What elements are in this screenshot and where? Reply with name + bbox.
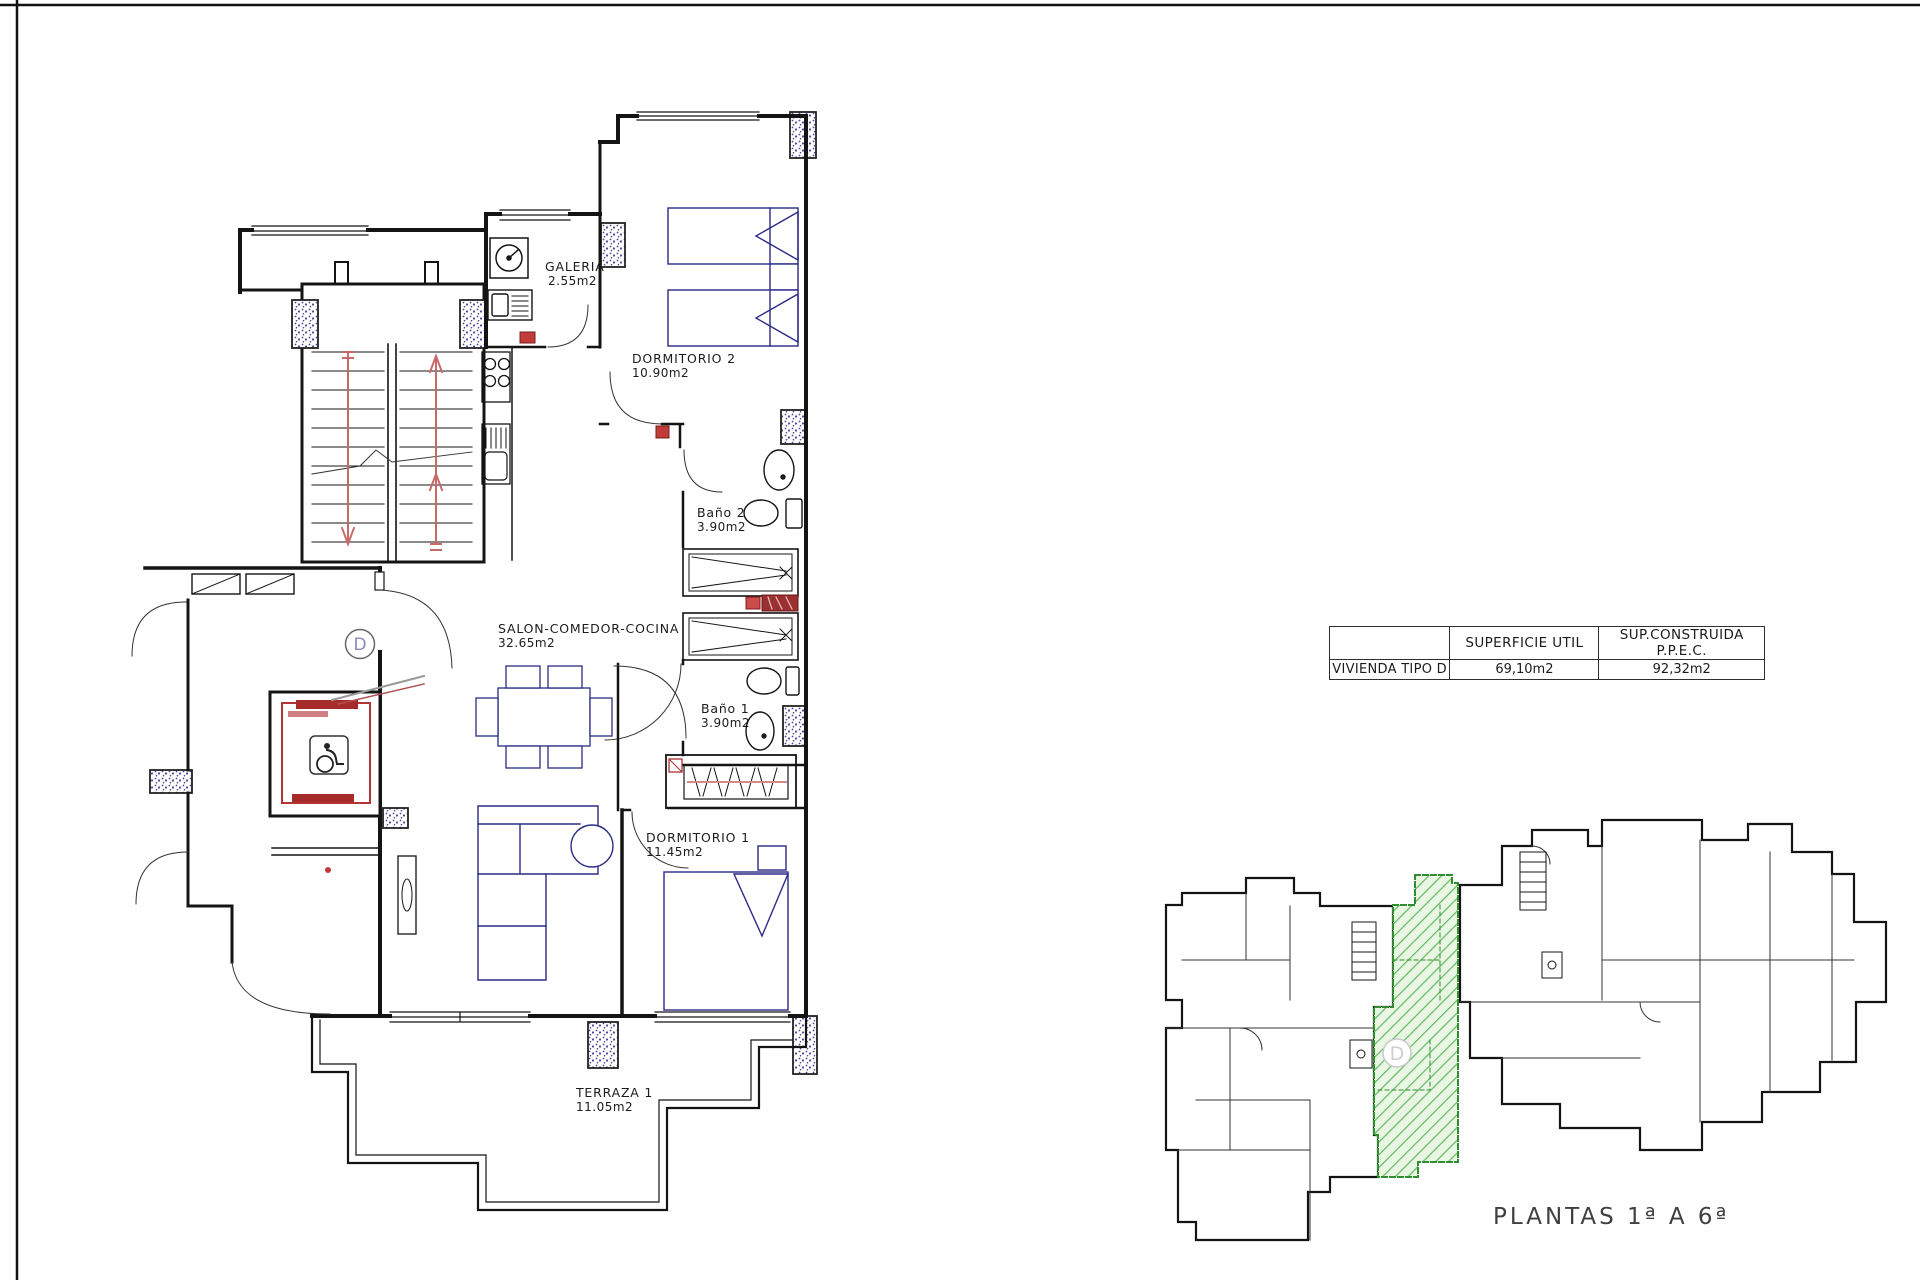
washing-machine	[490, 238, 528, 278]
galeria	[486, 142, 600, 347]
oven	[482, 424, 510, 484]
entrance-unit-badge: D	[346, 630, 375, 659]
side-table	[571, 825, 613, 867]
toilet	[744, 499, 802, 528]
tv-unit	[398, 856, 416, 934]
sofa	[478, 806, 613, 980]
washbasin	[746, 712, 774, 750]
room-label-salon: SALON-COMEDOR-COCINA	[498, 621, 679, 636]
key-plan-caption: PLANTAS 1ª A 6ª	[1493, 1204, 1729, 1230]
washbasin	[764, 450, 794, 490]
room-area-galeria: 2.55m2	[548, 274, 597, 288]
floor-plan-sheet: { "floor_plan": { "unit_letter": "D", "r…	[0, 0, 1920, 1280]
unit-letter: D	[353, 635, 366, 655]
towel-rail	[746, 597, 760, 609]
landing-walls	[240, 226, 486, 292]
room-label-bano-1: Baño 1	[701, 701, 750, 716]
room-area-bano-2: 3.90m2	[697, 520, 746, 534]
room-area-terraza: 11.05m2	[576, 1100, 633, 1114]
unit-plan: D GALERIA 2.55m2 DORMITORIO 2 10.90m2 Ba…	[132, 112, 817, 1210]
elevator	[270, 676, 424, 873]
surface-summary-table: SUPERFICIE UTIL SUP.CONSTRUIDA P.P.E.C. …	[1329, 626, 1765, 680]
room-label-terraza: TERRAZA 1	[575, 1085, 653, 1100]
red-fixture	[520, 332, 535, 343]
table-corner-cell	[1330, 627, 1450, 660]
room-area-bano-1: 3.90m2	[701, 716, 750, 730]
wardrobe	[666, 755, 796, 808]
table-row-label: VIVIENDA TIPO D	[1330, 660, 1450, 680]
dormitorio-2	[600, 112, 806, 447]
double-bed	[664, 846, 788, 1010]
room-area-salon: 32.65m2	[498, 636, 555, 650]
red-fixture	[656, 426, 669, 438]
key-plan-right-wing	[1460, 820, 1886, 1150]
highlighted-unit-letter: D	[1390, 1043, 1405, 1065]
key-plan: D PLANTAS 1ª A 6ª	[1166, 820, 1886, 1240]
room-area-dormitorio-1: 11.45m2	[646, 845, 703, 859]
table-value-sup-construida: 92,32m2	[1599, 660, 1765, 680]
room-label-dormitorio-1: DORMITORIO 1	[646, 830, 750, 845]
wheelchair-icon	[310, 736, 348, 774]
room-area-dormitorio-2: 10.90m2	[632, 366, 689, 380]
room-label-dormitorio-2: DORMITORIO 2	[632, 351, 736, 366]
stairwell	[302, 284, 484, 562]
toilet	[747, 667, 799, 695]
table-header-sup-construida: SUP.CONSTRUIDA P.P.E.C.	[1599, 627, 1765, 660]
galeria-sink	[488, 290, 532, 320]
table-header-superficie-util: SUPERFICIE UTIL	[1450, 627, 1599, 660]
dining-table	[476, 666, 612, 768]
room-label-galeria: GALERIA	[545, 259, 605, 274]
single-beds	[668, 208, 798, 346]
radiator	[762, 595, 798, 611]
room-label-bano-2: Baño 2	[697, 505, 746, 520]
table-value-superficie-util: 69,10m2	[1450, 660, 1599, 680]
south-wall	[312, 1012, 806, 1022]
terraza	[312, 1016, 806, 1210]
entrance-door-arc	[380, 590, 452, 668]
cooktop	[482, 352, 510, 402]
